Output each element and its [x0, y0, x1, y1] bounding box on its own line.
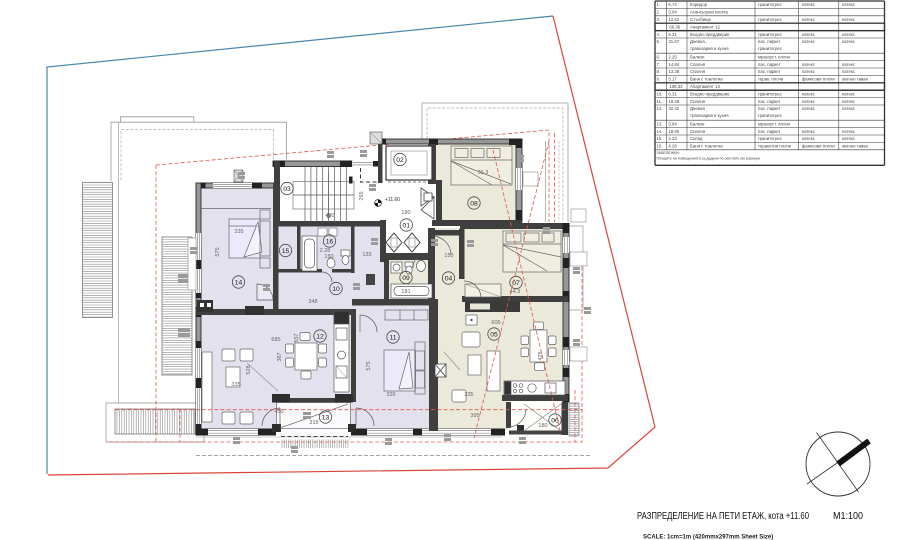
- svg-text:04: 04: [445, 275, 453, 282]
- svg-text:335: 335: [234, 229, 243, 235]
- svg-text:пас. паркет: пас. паркет: [758, 69, 781, 74]
- svg-text:латекс: латекс: [802, 62, 816, 67]
- svg-text:12.: 12.: [657, 106, 663, 111]
- svg-text:Дневна ,: Дневна ,: [690, 106, 707, 111]
- svg-text:М1:100: М1:100: [833, 511, 863, 522]
- svg-text:латекс: латекс: [842, 69, 856, 74]
- svg-text:Склад: Склад: [690, 136, 703, 141]
- svg-text:гранитогрес: гранитогрес: [758, 17, 783, 22]
- svg-text:латекс: латекс: [842, 62, 856, 67]
- svg-text:8.: 8.: [657, 69, 661, 74]
- svg-text:12.62: 12.62: [668, 17, 679, 22]
- svg-text:терак. плочи: терак. плочи: [758, 77, 784, 82]
- svg-text:пас. паркет: пас. паркет: [758, 99, 781, 104]
- svg-text:315: 315: [309, 420, 318, 426]
- svg-text:2.23: 2.23: [668, 136, 677, 141]
- svg-text:пас. паркет: пас. паркет: [758, 39, 781, 44]
- svg-text:605: 605: [491, 320, 500, 326]
- svg-text:Апартамент 13: Апартамент 13: [690, 84, 720, 89]
- svg-text:14.: 14.: [657, 129, 663, 134]
- svg-text:180: 180: [401, 210, 410, 216]
- svg-text:01: 01: [403, 222, 411, 229]
- svg-text:575: 575: [366, 361, 372, 370]
- svg-text:латекс: латекс: [802, 69, 816, 74]
- svg-text:2.: 2.: [657, 10, 661, 15]
- svg-text:ЗАБЕЛЕЖКИ:: ЗАБЕЛЕЖКИ:: [657, 151, 680, 155]
- svg-text:гранитогрес: гранитогрес: [758, 91, 783, 96]
- svg-text:мразоуст. плочи: мразоуст. плочи: [758, 121, 790, 126]
- svg-text:08: 08: [470, 200, 478, 207]
- svg-text:348: 348: [308, 299, 317, 305]
- svg-text:Баня с тоалетна: Баня с тоалетна: [690, 77, 723, 82]
- svg-text:5.: 5.: [657, 39, 661, 44]
- svg-text:13.: 13.: [657, 121, 663, 126]
- svg-text:36.3: 36.3: [478, 170, 489, 176]
- svg-text:150: 150: [444, 253, 453, 259]
- svg-text:16.: 16.: [657, 144, 663, 149]
- svg-text:335: 335: [464, 392, 473, 398]
- svg-text:13: 13: [322, 414, 330, 421]
- svg-text:10.: 10.: [657, 91, 663, 96]
- svg-text:Спалня: Спалня: [690, 69, 706, 74]
- svg-text:Коридор: Коридор: [690, 2, 708, 7]
- svg-text:11.: 11.: [657, 99, 663, 104]
- svg-text:12: 12: [316, 333, 324, 340]
- svg-text:окачен таван: окачен таван: [842, 77, 869, 82]
- svg-text:13.38: 13.38: [668, 69, 679, 74]
- svg-text:02: 02: [396, 157, 404, 164]
- svg-text:латекс: латекс: [802, 91, 816, 96]
- svg-text:РАЗПРЕДЕЛЕНИЕ НА ПЕТИ ЕТАЖ, ко: РАЗПРЕДЕЛЕНИЕ НА ПЕТИ ЕТАЖ, кота +11.60: [637, 511, 809, 522]
- svg-text:11: 11: [389, 334, 396, 341]
- svg-text:32.42: 32.42: [668, 106, 679, 111]
- svg-text:Стълбище: Стълбище: [690, 17, 712, 22]
- svg-text:латекс: латекс: [802, 2, 816, 7]
- svg-text:66.36: 66.36: [669, 24, 680, 29]
- svg-text:пас. паркет: пас. паркет: [758, 129, 781, 134]
- svg-text:Площите на помещенията са даде: Площите на помещенията са дадени по свет…: [657, 156, 760, 160]
- svg-text:2.25: 2.25: [668, 54, 677, 59]
- svg-text:6.: 6.: [657, 54, 661, 59]
- svg-text:9.: 9.: [657, 77, 661, 82]
- svg-text:4.28: 4.28: [668, 144, 677, 149]
- svg-text:3.94: 3.94: [668, 121, 677, 126]
- svg-text:латекс: латекс: [842, 91, 856, 96]
- svg-text:133: 133: [362, 252, 371, 258]
- svg-text:латекс: латекс: [802, 106, 816, 111]
- svg-text:06: 06: [551, 417, 559, 424]
- svg-text:трапезария и кухня: трапезария и кухня: [690, 46, 729, 51]
- svg-text:+11.60: +11.60: [385, 197, 400, 203]
- svg-text:10: 10: [332, 286, 340, 293]
- svg-text:181: 181: [401, 289, 410, 295]
- svg-text:367: 367: [277, 352, 283, 361]
- svg-text:фаянсови плочи: фаянсови плочи: [802, 144, 836, 149]
- svg-text:3.04: 3.04: [668, 10, 677, 15]
- svg-text:латекс: латекс: [842, 129, 856, 134]
- svg-text:латекс: латекс: [842, 17, 856, 22]
- svg-text:14.84: 14.84: [668, 62, 679, 67]
- svg-text:180: 180: [538, 423, 547, 429]
- svg-text:Дневна ,: Дневна ,: [690, 39, 707, 44]
- svg-text:гранитогрес: гранитогрес: [758, 113, 783, 118]
- svg-text:мразоуст. плочи: мразоуст. плочи: [758, 54, 790, 59]
- svg-text:19.28: 19.28: [668, 99, 679, 104]
- svg-text:480: 480: [325, 213, 334, 219]
- svg-text:SCALE: 1cm=1m (420mmx297mm She: SCALE: 1cm=1m (420mmx297mm Sheet Size): [643, 535, 773, 540]
- svg-text:пас. паркет: пас. паркет: [758, 106, 781, 111]
- svg-text:6.74: 6.74: [668, 2, 677, 7]
- svg-text:латекс: латекс: [842, 39, 856, 44]
- svg-text:15.: 15.: [657, 136, 663, 141]
- svg-text:685: 685: [271, 337, 280, 343]
- svg-text:пас. паркет: пас. паркет: [758, 62, 781, 67]
- svg-text:6.31: 6.31: [668, 91, 677, 96]
- svg-text:Входно преддверие: Входно преддверие: [690, 32, 730, 37]
- svg-text:гранитогрес: гранитогрес: [758, 2, 783, 7]
- svg-text:Входно преддверие: Входно преддверие: [690, 91, 730, 96]
- svg-text:108.33: 108.33: [669, 84, 683, 89]
- svg-text:гранитогрес: гранитогрес: [758, 136, 783, 141]
- svg-text:гранитогрес: гранитогрес: [758, 32, 783, 37]
- svg-text:16: 16: [326, 238, 334, 245]
- svg-text:латекс: латекс: [842, 136, 856, 141]
- svg-text:Спалня: Спалня: [690, 62, 706, 67]
- svg-text:575: 575: [215, 247, 221, 256]
- svg-text:латекс: латекс: [802, 136, 816, 141]
- svg-text:латекс: латекс: [842, 99, 856, 104]
- svg-text:латекс: латекс: [802, 32, 816, 37]
- svg-text:1.: 1.: [657, 2, 661, 7]
- svg-text:Апартамент 12: Апартамент 12: [690, 24, 720, 29]
- svg-text:31.67: 31.67: [668, 39, 679, 44]
- svg-text:латекс: латекс: [842, 2, 856, 7]
- svg-text:трапезария и кухня: трапезария и кухня: [690, 113, 729, 118]
- svg-text:150: 150: [324, 254, 333, 260]
- svg-text:7.: 7.: [657, 62, 661, 67]
- svg-text:латекс: латекс: [802, 99, 816, 104]
- svg-text:265: 265: [359, 191, 365, 200]
- svg-text:4.: 4.: [657, 32, 661, 37]
- svg-text:05: 05: [490, 331, 498, 338]
- svg-text:557: 557: [294, 333, 300, 342]
- svg-text:Балкон: Балкон: [690, 54, 705, 59]
- svg-text:Баня с тоалетна: Баня с тоалетна: [690, 144, 723, 149]
- svg-text:латекс: латекс: [802, 17, 816, 22]
- svg-text:латекс: латекс: [842, 32, 856, 37]
- svg-text:5.17: 5.17: [668, 77, 677, 82]
- svg-text:фаянсови плочи: фаянсови плочи: [802, 77, 836, 82]
- svg-text:Спалня: Спалня: [690, 129, 706, 134]
- svg-text:15: 15: [282, 248, 290, 255]
- svg-text:латекс: латекс: [842, 106, 856, 111]
- svg-text:09: 09: [402, 275, 410, 282]
- svg-text:14: 14: [235, 279, 243, 286]
- svg-text:5.21: 5.21: [668, 32, 677, 37]
- svg-text:3.: 3.: [657, 17, 661, 22]
- svg-text:латекс: латекс: [802, 129, 816, 134]
- svg-text:18.90: 18.90: [668, 129, 679, 134]
- svg-text:03: 03: [283, 186, 291, 193]
- svg-text:395: 395: [470, 413, 479, 419]
- svg-text:428: 428: [538, 351, 544, 360]
- svg-text:335: 335: [386, 392, 395, 398]
- svg-text:теракотни плочи: теракотни плочи: [758, 144, 792, 149]
- svg-text:335: 335: [231, 382, 240, 388]
- svg-text:528: 528: [246, 365, 252, 374]
- svg-text:окачен таван: окачен таван: [842, 144, 869, 149]
- svg-text:гранитогрес: гранитогрес: [758, 46, 783, 51]
- svg-text:Спалня: Спалня: [690, 99, 706, 104]
- svg-text:Асансьорна клетка: Асансьорна клетка: [690, 10, 729, 15]
- svg-text:Балкон: Балкон: [690, 121, 705, 126]
- svg-text:латекс: латекс: [802, 39, 816, 44]
